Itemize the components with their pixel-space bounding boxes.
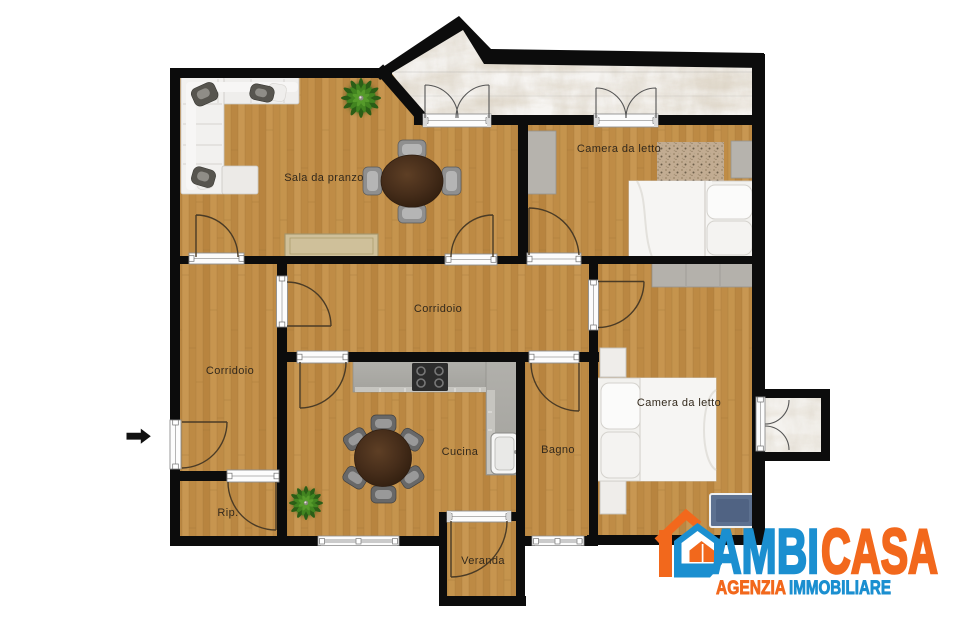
svg-text:CASA: CASA — [821, 517, 938, 587]
svg-text:IMMOBILIARE: IMMOBILIARE — [789, 578, 891, 599]
svg-text:Corridoio: Corridoio — [206, 365, 254, 377]
svg-text:Camera da letto: Camera da letto — [577, 143, 661, 155]
svg-text:Rip.: Rip. — [217, 507, 238, 519]
svg-text:Bagno: Bagno — [541, 444, 575, 456]
svg-text:Corridoio: Corridoio — [414, 303, 462, 315]
svg-text:AMBI: AMBI — [711, 517, 819, 587]
svg-text:Sala da pranzo: Sala da pranzo — [284, 172, 364, 184]
svg-text:Veranda: Veranda — [461, 555, 505, 567]
svg-text:Cucina: Cucina — [442, 446, 479, 458]
svg-text:AGENZIA: AGENZIA — [716, 578, 786, 599]
svg-text:Camera da letto: Camera da letto — [637, 397, 721, 409]
